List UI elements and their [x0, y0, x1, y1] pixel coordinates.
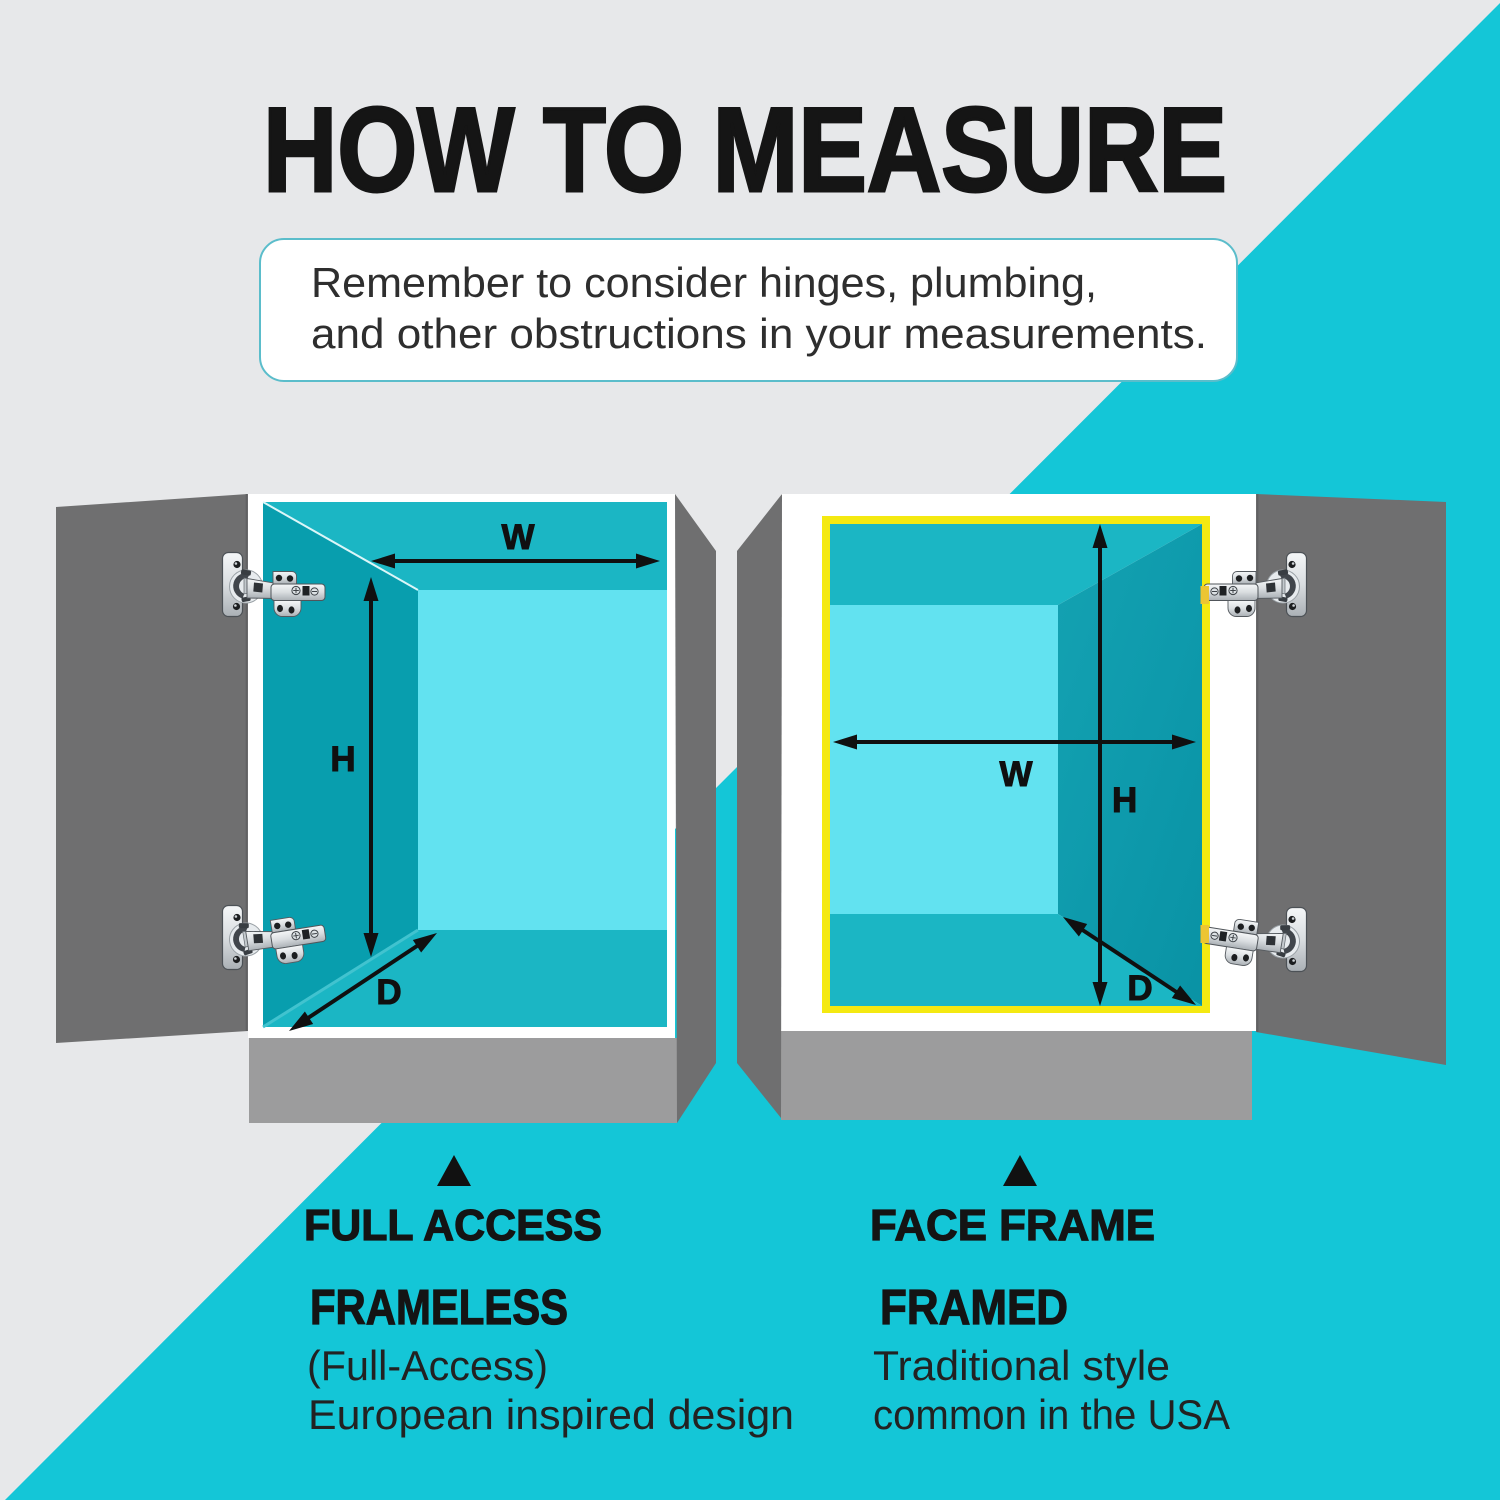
svg-text:HOW TO MEASURE: HOW TO MEASURE: [263, 83, 1227, 217]
svg-text:FULL ACCESS: FULL ACCESS: [304, 1201, 602, 1250]
svg-text:D: D: [1127, 969, 1152, 1008]
svg-text:common in the USA: common in the USA: [873, 1391, 1230, 1438]
svg-text:FACE FRAME: FACE FRAME: [870, 1201, 1155, 1250]
svg-text:D: D: [376, 973, 401, 1012]
svg-text:and other obstructions in your: and other obstructions in your measureme…: [311, 310, 1207, 357]
svg-text:FRAMELESS: FRAMELESS: [310, 1281, 568, 1335]
svg-text:Traditional style: Traditional style: [873, 1342, 1170, 1389]
svg-text:FRAMED: FRAMED: [880, 1281, 1068, 1335]
svg-text:European inspired design: European inspired design: [308, 1391, 794, 1438]
svg-text:W: W: [999, 755, 1032, 794]
svg-text:H: H: [330, 740, 355, 779]
svg-text:H: H: [1112, 781, 1137, 820]
svg-text:W: W: [501, 518, 534, 557]
svg-text:(Full-Access): (Full-Access): [307, 1342, 548, 1389]
svg-text:Remember to consider hinges, p: Remember to consider hinges, plumbing,: [311, 259, 1097, 306]
